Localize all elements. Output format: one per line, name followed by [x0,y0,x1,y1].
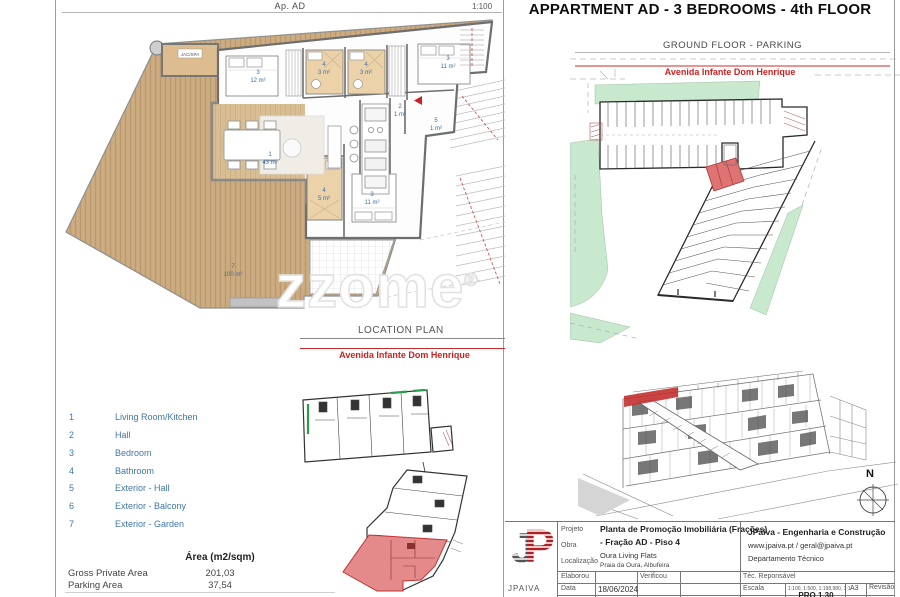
legend-item-5: 5Exterior - Hall [65,483,305,499]
projeto-label: Projeto [561,526,583,533]
right-annex [830,396,866,460]
svg-text:5 m²: 5 m² [318,196,330,202]
svg-text:3 m²: 3 m² [360,70,372,76]
upper-units [303,390,453,462]
verificou-label: Verificou [640,573,667,580]
location-header-rule [300,338,505,339]
data-value: 18/06/2024 [598,585,638,594]
company-short: JPAIVA [508,584,540,593]
drawing-sheet: APPARTMENT AD - 3 BEDROOMS - 4th FLOOR A… [0,0,900,597]
svg-text:11 m²: 11 m² [365,200,380,206]
legend-item-3: 3Bedroom [65,448,305,464]
revisao-label: Revisão [869,584,894,591]
svg-text:43 m²: 43 m² [262,160,277,166]
area-table-rule [65,592,335,593]
legend-item-4: 4Bathroom [65,466,305,482]
location-street-rule [300,348,505,349]
company-department: Departamento Técnico [748,554,824,563]
tb-v6 [785,583,786,597]
company-name: JPaiva - Engenharia e Construção [748,527,885,537]
compass-icon [855,482,891,518]
location-key-plan [295,380,470,595]
sheet-size: A3 [850,585,859,592]
parking-header-rule [575,52,890,53]
jpaiva-logo: J P [510,524,556,574]
company-contacts: www.jpaiva.pt / geral@jpaiva.pt [748,541,852,550]
north-label: N [866,468,874,480]
svg-text:11 m²: 11 m² [441,64,456,70]
project-line2: - Fração AD - Piso 4 [600,537,680,547]
svg-text:3 m²: 3 m² [318,70,330,76]
doc-number: PRO 1.30 [788,591,844,597]
svg-text:1 m²: 1 m² [394,112,406,118]
ground-lines [583,462,898,519]
jacuzzi-label: JAC/SPA [181,52,199,57]
highlighted-unit [343,535,447,591]
tb-v8 [866,583,867,597]
svg-text:12 m²: 12 m² [250,78,265,84]
elaborou-label: Elaborou [561,573,589,580]
data-label: Data [561,585,576,592]
floor-plan: JAC/SPA [60,8,505,330]
area-row-1-value: 201,03 [150,568,290,579]
area-row-1-label: Gross Private Area [68,568,148,579]
sheet-title: APPARTMENT AD - 3 BEDROOMS - 4th FLOOR [505,1,895,18]
tb-rule-2 [557,571,895,572]
tb-v1 [557,521,558,597]
svg-text:1 m²: 1 m² [430,126,442,132]
obra-value: Oura Living Flats [600,551,657,560]
building-3d-view [578,366,898,521]
tb-v2 [595,571,596,597]
legend-item-6: 6Exterior - Balcony [65,501,305,517]
area-row-2-label: Parking Area [68,580,122,591]
svg-text:100 m²: 100 m² [224,272,243,278]
road-lines [570,59,900,79]
planter [230,298,292,307]
legend-item-1: 1Living Room/Kitchen [65,412,305,428]
bed-left [226,56,278,96]
location-plan-header: LOCATION PLAN [358,325,444,336]
obra-label: Obra [561,542,577,549]
tb-top-rule [505,521,895,522]
parking-header: GROUND FLOOR - PARKING [575,40,890,51]
project-line1: Planta de Promoção Imobiliária (Frações) [600,524,767,534]
localizacao-label: Localização [561,558,598,565]
parking-structure [600,99,807,169]
parking-plan [570,55,900,345]
tec-label: Téc. Reponsável [743,573,796,580]
escala-label: Escala [743,585,764,592]
legend-item-7: 7Exterior - Garden [65,519,305,535]
left-border [55,0,56,597]
area-row-2-value: 37,54 [150,580,290,591]
location-street-label: Avenida Infante Dom Henrique [322,350,487,360]
legend-item-2: 2Hall [65,430,305,446]
localizacao-value: Praia da Oura, Albufeira [600,562,669,569]
tb-v4 [680,571,681,597]
area-table-header: Área (m2/sqm) [150,552,290,563]
